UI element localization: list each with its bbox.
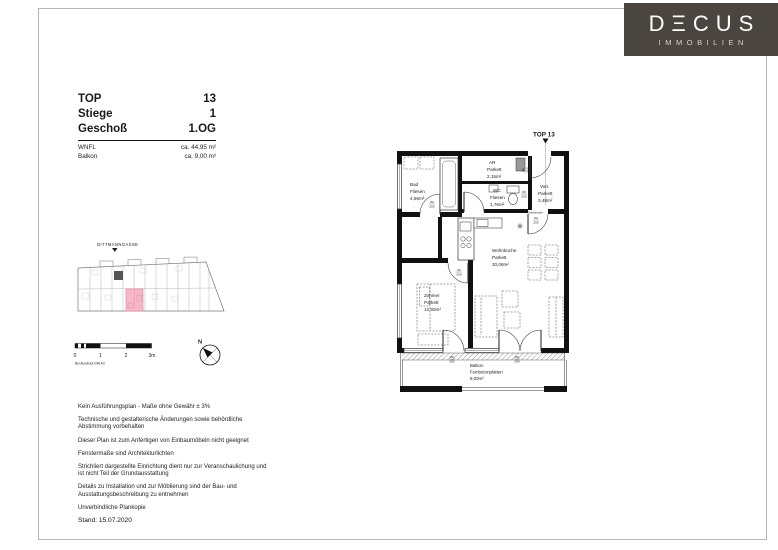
disclaimer-line: Technische und gestalterische Änderungen…: [78, 417, 318, 431]
svg-text:Zimmer: Zimmer: [424, 293, 440, 298]
plan-date: Stand: 15.07.2020: [78, 517, 132, 524]
disclaimer-line: Unverbindliche Plankopie: [78, 505, 318, 512]
svg-text:80: 80: [450, 355, 454, 359]
svg-text:Fliesen: Fliesen: [490, 195, 505, 200]
balkon-label: Balkon: [78, 153, 97, 162]
svg-text:80: 80: [522, 190, 526, 194]
scale-and-compass: 0 1 2 3m Bei Ausdruck DIN A3 N: [68, 332, 228, 370]
scale-tick-3: 3m: [149, 353, 156, 359]
room-label-wc: WC Fliesen 1,76m²: [490, 188, 505, 207]
floor-plan: TOP 13: [385, 125, 645, 420]
svg-text:80: 80: [515, 355, 519, 359]
wc-bowl: [509, 194, 518, 205]
street-arrow-icon: [112, 248, 118, 252]
svg-text:200: 200: [514, 359, 519, 363]
compass: N: [198, 340, 220, 366]
washing-machine: [404, 157, 418, 169]
disclaimer-block: Kein Ausführungsplan - Maße ohne Gewähr …: [78, 404, 318, 518]
top-label: TOP: [78, 92, 101, 107]
svg-text:AR: AR: [489, 160, 496, 165]
room-label-zimmer: Zimmer Parkett 12,90m²: [424, 293, 441, 312]
brand-subtitle: IMMOBILIEN: [654, 38, 748, 47]
svg-text:Feinbetonplatten: Feinbetonplatten: [470, 370, 503, 375]
street-label: DITTMANNGASSE: [97, 242, 138, 247]
building-outline: [78, 257, 224, 311]
scale-tick-1: 1: [99, 353, 102, 359]
unit-info-block: TOP 13 Stiege 1 Geschoß 1.OG WNFL ca. 44…: [78, 92, 216, 161]
garderobe-label: Garderobe: [528, 211, 543, 215]
unit-row-balkon: Balkon ca. 9,00 m²: [78, 153, 216, 162]
svg-text:80: 80: [534, 216, 538, 220]
svg-text:2,15m²: 2,15m²: [487, 174, 502, 179]
svg-text:3,48m²: 3,48m²: [538, 198, 553, 203]
lamp-symbol-icon: [517, 223, 523, 229]
svg-text:Parkett: Parkett: [487, 167, 502, 172]
header-divider: [78, 140, 216, 141]
svg-text:Parkett: Parkett: [424, 300, 439, 305]
svg-text:80: 80: [457, 268, 461, 272]
svg-text:80: 80: [430, 200, 434, 204]
svg-text:200: 200: [521, 194, 526, 198]
geschoss-value: 1.OG: [189, 122, 216, 137]
svg-text:Parkett: Parkett: [538, 191, 553, 196]
room-label-vorraum: Vorr. Parkett 3,48m²: [538, 184, 553, 203]
svg-text:200: 200: [429, 204, 434, 208]
disclaimer-line: Fenstermaße sind Architekturlichten: [78, 451, 318, 458]
svg-text:Bad: Bad: [410, 182, 419, 187]
coffee-table: [502, 291, 518, 307]
geschoss-label: Geschoß: [78, 122, 127, 137]
kitchen-appliance: [477, 220, 488, 227]
scale-note: Bei Ausdruck DIN A3: [75, 362, 105, 366]
svg-text:200: 200: [525, 167, 529, 172]
disclaimer-line: Dieser Plan ist zum Anfertigen von Einba…: [78, 438, 318, 445]
floorplan-document: { "logo": {"brand": "DΞCUS", "subtitle":…: [0, 0, 778, 550]
dining-set: [528, 245, 558, 280]
svg-text:12,90m²: 12,90m²: [424, 307, 441, 312]
room-label-bad: Bad Fliesen 4,59m²: [410, 182, 425, 201]
unit-row-wnfl: WNFL ca. 44,95 m²: [78, 144, 216, 153]
kitchen-sink: [460, 222, 471, 231]
disclaimer-line: Kein Ausführungsplan - Maße ohne Gewähr …: [78, 404, 318, 411]
site-overview-plan: DITTMANNGASSE: [70, 238, 235, 318]
svg-text:Balkon: Balkon: [470, 363, 484, 368]
svg-text:200: 200: [533, 220, 538, 224]
room-label-wohnkueche: Wohnküche Parkett 20,06m²: [492, 248, 517, 267]
top-value: 13: [203, 92, 216, 107]
disclaimer-line: Strichliert dargestellte Einrichtung die…: [78, 464, 318, 478]
unit-marker-arrow-icon: [543, 139, 549, 144]
svg-text:200: 200: [449, 359, 454, 363]
svg-text:1,76m²: 1,76m²: [490, 202, 505, 207]
walls: [397, 151, 569, 353]
wnfl-value: ca. 44,95 m²: [181, 144, 216, 153]
north-label: N: [198, 340, 202, 346]
stiege-label: Stiege: [78, 107, 113, 122]
scale-tick-0: 0: [74, 353, 77, 359]
svg-text:200: 200: [456, 272, 461, 276]
sofa: [475, 296, 497, 337]
room-label-ar: AR Parkett 2,15m²: [487, 160, 502, 179]
svg-text:Wohnküche: Wohnküche: [492, 248, 517, 253]
svg-text:Vorr.: Vorr.: [540, 184, 549, 189]
wc-cistern: [507, 186, 519, 193]
highlighted-unit: [126, 289, 143, 311]
svg-text:Parkett: Parkett: [492, 255, 507, 260]
svg-text:Fliesen: Fliesen: [410, 189, 425, 194]
unit-row-stiege: Stiege 1: [78, 107, 216, 122]
svg-text:WC: WC: [493, 188, 501, 193]
svg-text:9,00m²: 9,00m²: [470, 376, 484, 381]
svg-text:4,59m²: 4,59m²: [410, 196, 425, 201]
unit-row-top: TOP 13: [78, 92, 216, 107]
disclaimer-line: Details zu Installation und zur Möblieru…: [78, 484, 318, 498]
room-label-balkon: Balkon Feinbetonplatten 9,00m²: [470, 363, 503, 381]
logo: DΞCUS IMMOBILIEN: [624, 3, 778, 56]
svg-text:TOP 13: TOP 13: [533, 132, 555, 139]
stiege-value: 1: [210, 107, 216, 122]
scale-tick-2: 2: [125, 353, 128, 359]
svg-text:80: 80: [521, 168, 525, 172]
svg-text:20,06m²: 20,06m²: [492, 262, 509, 267]
scale-bar: 0 1 2 3m Bei Ausdruck DIN A3: [74, 344, 156, 366]
stairwell-block: [114, 271, 123, 280]
wnfl-label: WNFL: [78, 144, 96, 153]
brand-name: DΞCUS: [642, 12, 761, 36]
unit-row-geschoss: Geschoß 1.OG: [78, 122, 216, 137]
balkon-value: ca. 9,00 m²: [185, 153, 217, 162]
